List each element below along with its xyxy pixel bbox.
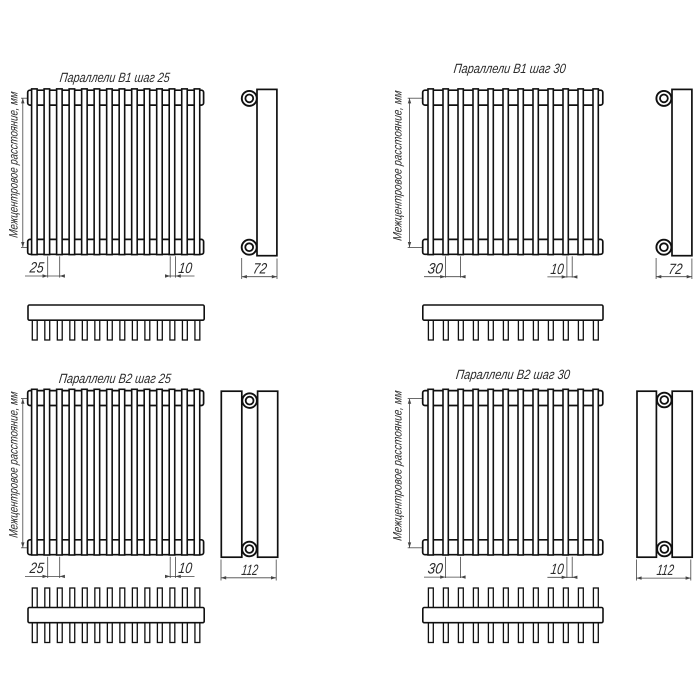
svg-text:Межцентровое расстояние, мм: Межцентровое расстояние, мм — [391, 389, 405, 541]
svg-text:30: 30 — [427, 260, 445, 277]
svg-text:112: 112 — [656, 562, 676, 579]
svg-text:10: 10 — [550, 561, 566, 578]
svg-text:Параллели B1 шаг 25: Параллели B1 шаг 25 — [59, 70, 171, 85]
svg-text:Межцентровое расстояние, мм: Межцентровое расстояние, мм — [391, 89, 405, 241]
svg-text:10: 10 — [550, 261, 566, 278]
svg-text:112: 112 — [241, 562, 260, 579]
svg-text:Межцентровое расстояние, мм: Межцентровое расстояние, мм — [7, 90, 21, 238]
svg-text:Параллели B2 шаг 25: Параллели B2 шаг 25 — [58, 371, 172, 386]
svg-text:Межцентровое расстояние, мм: Межцентровое расстояние, мм — [7, 390, 21, 538]
svg-text:25: 25 — [28, 560, 45, 577]
svg-text:72: 72 — [668, 261, 684, 278]
svg-text:Параллели B1 шаг 30: Параллели B1 шаг 30 — [453, 61, 567, 76]
svg-text:10: 10 — [178, 560, 194, 577]
svg-text:30: 30 — [427, 561, 445, 578]
svg-text:10: 10 — [178, 260, 194, 277]
svg-text:72: 72 — [252, 261, 268, 278]
svg-text:25: 25 — [28, 260, 45, 277]
svg-text:Параллели B2 шаг 30: Параллели B2 шаг 30 — [455, 367, 571, 382]
